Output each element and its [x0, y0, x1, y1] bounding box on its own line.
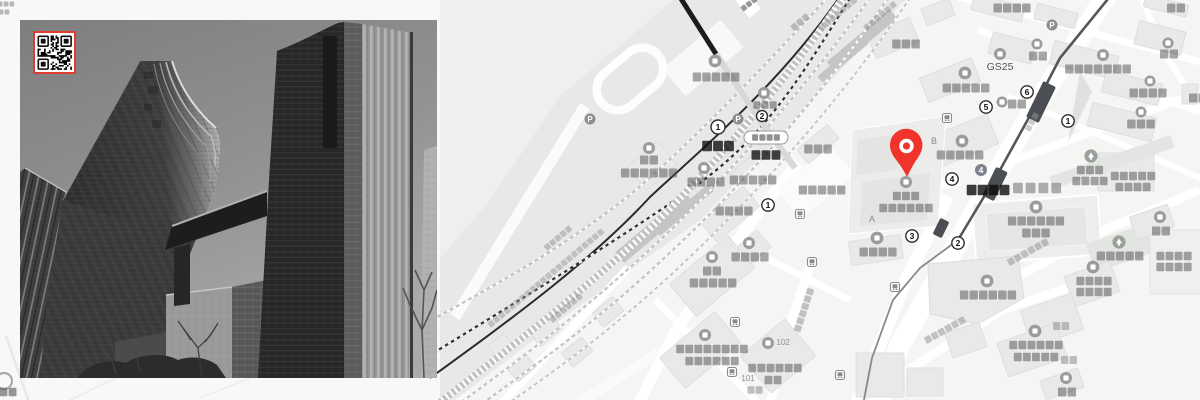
svg-text:1: 1	[766, 200, 771, 210]
svg-text:2: 2	[956, 238, 961, 248]
svg-text:P: P	[587, 115, 593, 124]
svg-text:6: 6	[1025, 87, 1030, 97]
svg-text:GS25: GS25	[987, 61, 1014, 73]
svg-text:P: P	[1049, 21, 1055, 30]
svg-text:5: 5	[984, 102, 989, 112]
svg-text:B: B	[931, 136, 937, 146]
svg-text:A: A	[869, 214, 875, 224]
svg-text:101: 101	[741, 374, 755, 383]
svg-text:4: 4	[979, 165, 984, 175]
svg-text:102: 102	[776, 338, 790, 347]
svg-text:3: 3	[910, 231, 915, 241]
svg-text:1: 1	[716, 122, 721, 132]
svg-text:1: 1	[1066, 116, 1071, 126]
svg-text:2: 2	[760, 111, 765, 121]
svg-text:P: P	[735, 115, 741, 124]
svg-text:4: 4	[950, 174, 955, 184]
